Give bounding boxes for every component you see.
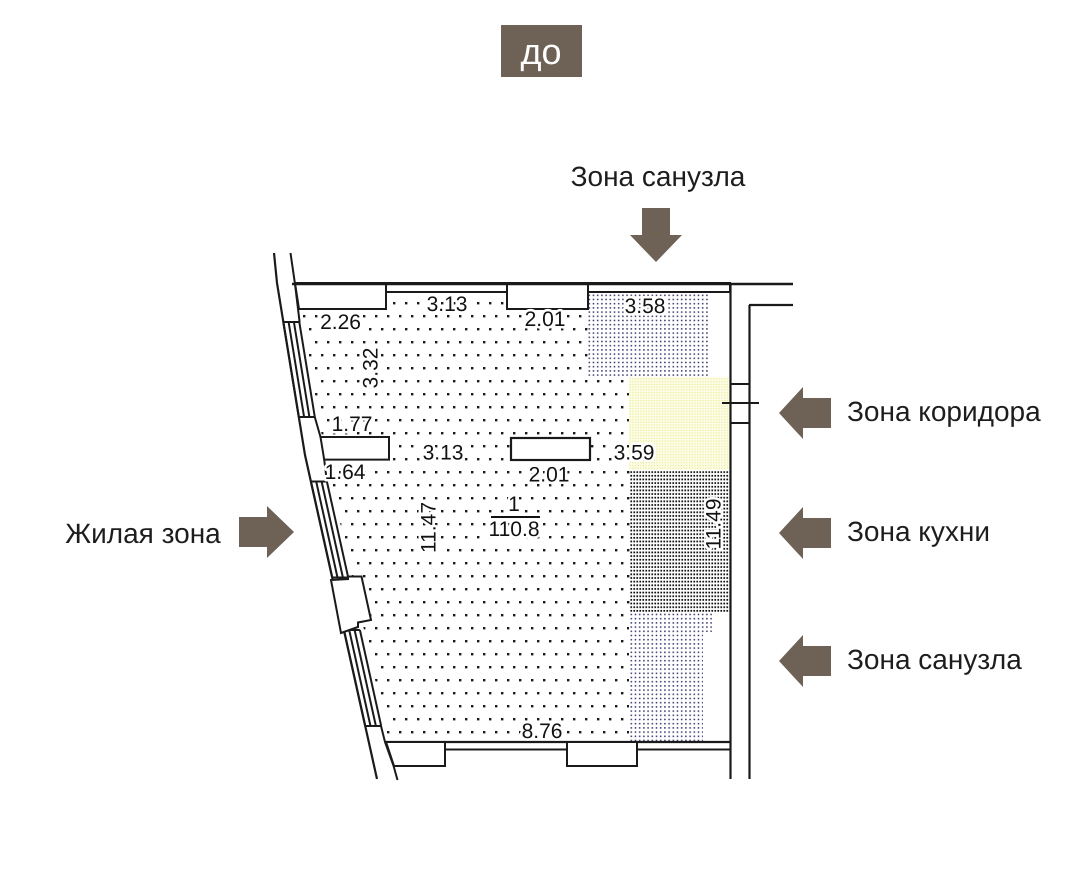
svg-text:до: до (520, 31, 561, 72)
svg-text:110.8: 110.8 (489, 518, 540, 541)
svg-text:3.13: 3.13 (423, 442, 464, 465)
svg-text:11.49: 11.49 (703, 499, 726, 550)
svg-text:3.58: 3.58 (625, 295, 666, 318)
svg-text:2.01: 2.01 (525, 308, 566, 331)
svg-text:Зона санузла: Зона санузла (571, 161, 746, 192)
svg-text:Зона санузла: Зона санузла (847, 644, 1022, 675)
svg-text:8.76: 8.76 (522, 720, 563, 743)
svg-text:3.59: 3.59 (614, 442, 655, 465)
svg-text:11.47: 11.47 (418, 502, 441, 553)
svg-text:1: 1 (508, 493, 520, 516)
svg-text:1.77: 1.77 (332, 413, 373, 436)
svg-text:Жилая зона: Жилая зона (65, 518, 221, 549)
svg-text:Зона коридора: Зона коридора (847, 396, 1041, 427)
svg-text:3.32: 3.32 (360, 348, 383, 389)
svg-text:Зона кухни: Зона кухни (847, 516, 990, 547)
svg-text:1.64: 1.64 (325, 461, 366, 484)
svg-text:2.01: 2.01 (529, 464, 570, 487)
svg-text:2.26: 2.26 (320, 311, 361, 334)
svg-text:3.13: 3.13 (427, 293, 468, 316)
